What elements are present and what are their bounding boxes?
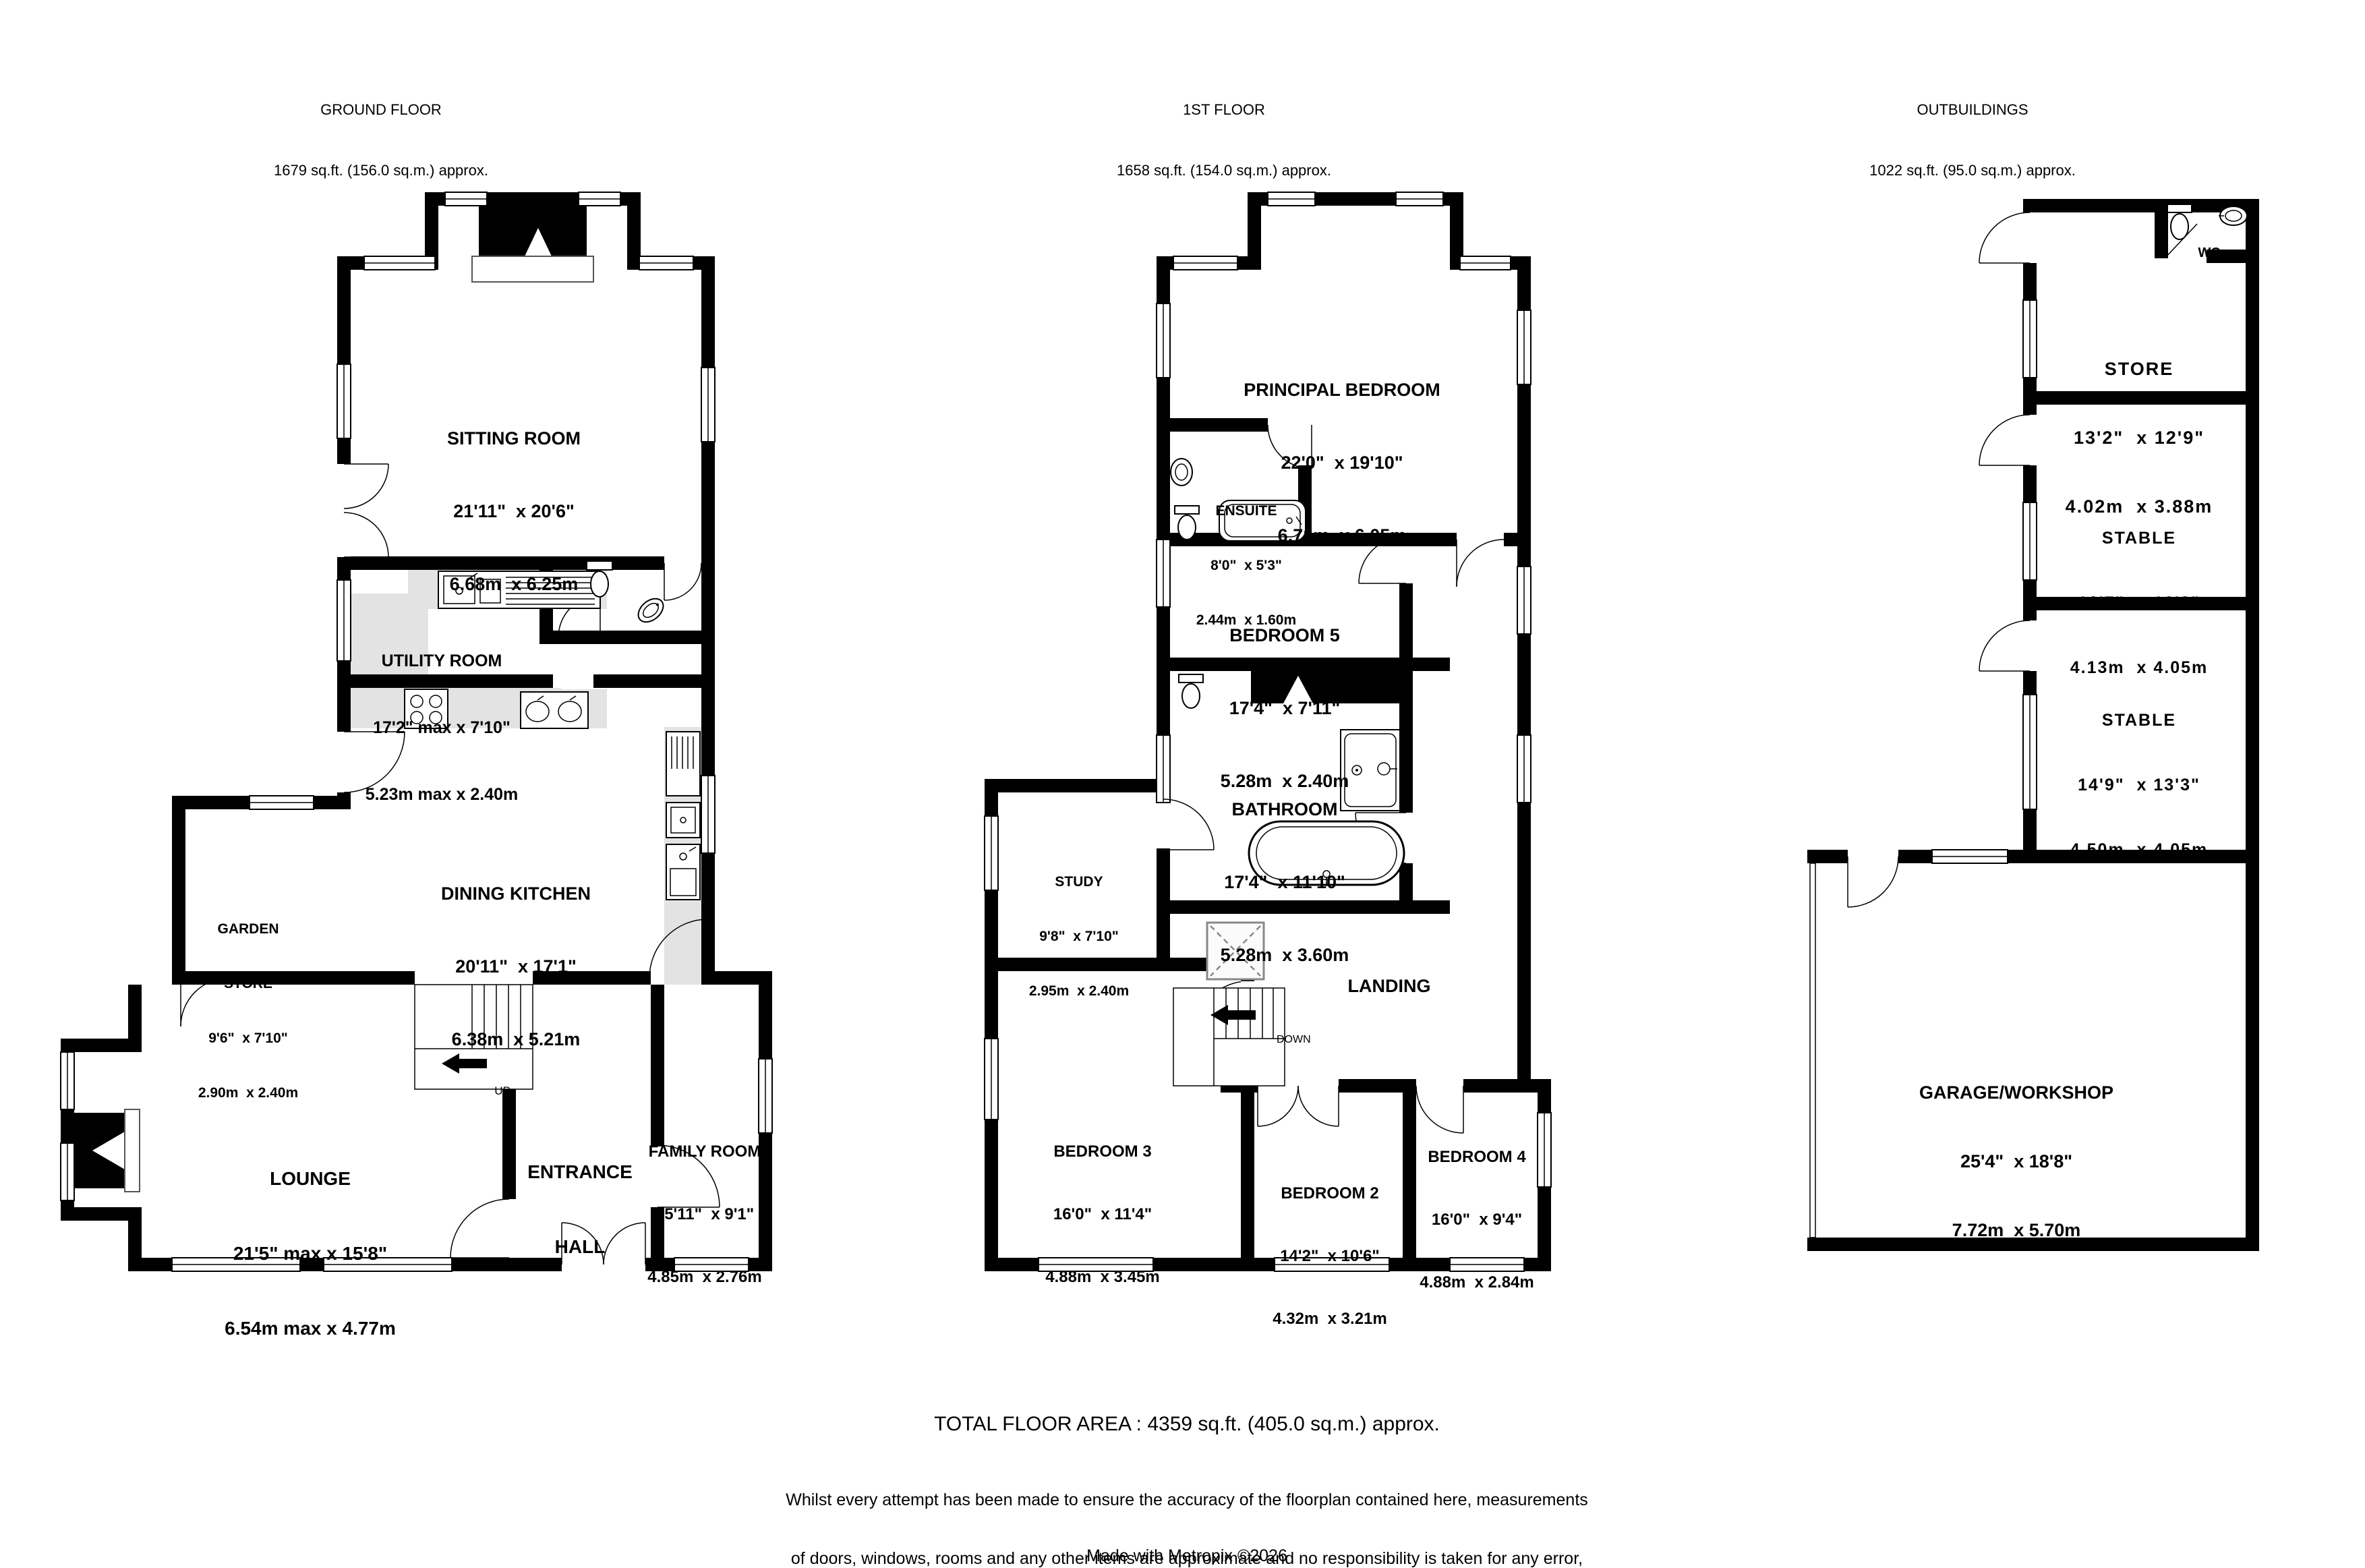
room-label-lounge: LOUNGE 21'5" max x 15'8" 6.54m max x 4.7… <box>225 1116 396 1366</box>
chimney-breast <box>479 206 587 256</box>
room-label-wc-outbuilding: WC <box>2198 214 2220 277</box>
room-label-entrance-hall: ENTRANCE HALL <box>527 1109 633 1284</box>
first-floor-title: 1ST FLOOR <box>1117 100 1331 120</box>
room-label-wc-ground: WC <box>560 592 587 668</box>
room-label-sitting-room: SITTING ROOM 21'11" x 20'6" 6.68m x 6.25… <box>447 378 581 620</box>
room-label-garage-workshop: GARAGE/WORKSHOP 25'4" x 18'8" 7.72m x 5.… <box>1919 1035 2113 1265</box>
shower-icon <box>1341 730 1400 811</box>
appliance-icon <box>666 803 700 838</box>
fireplace <box>67 1109 140 1192</box>
room-label-bedroom-4: BEDROOM 4 16'0" x 9'4" 4.88m x 2.84m <box>1420 1105 1534 1314</box>
double-sink-icon <box>521 692 588 728</box>
first-floor-header: 1ST FLOOR 1658 sq.ft. (154.0 sq.m.) appr… <box>1117 59 1331 201</box>
fridge-icon <box>666 732 700 796</box>
room-label-landing: LANDING <box>1348 934 1431 1018</box>
outbuilding-basin-icon <box>2219 206 2247 225</box>
room-label-family-room: FAMILY ROOM 15'11" x 9'1" 4.85m x 2.76m <box>647 1099 761 1308</box>
outbuildings-title: OUTBUILDINGS <box>1869 100 2076 120</box>
room-label-stable-2: STABLE 14'9" x 13'3" 4.50m x 4.05m <box>2070 666 2209 882</box>
room-label-bathroom: BATHROOM 17'4" x 11'10" 5.28m x 3.60m <box>1221 749 1349 991</box>
stairs-down <box>1173 988 1285 1086</box>
room-label-utility-room: UTILITY ROOM 17'2" max x 7'10" 5.23m max… <box>366 606 519 828</box>
ground-floor-header: GROUND FLOOR 1679 sq.ft. (156.0 sq.m.) a… <box>274 59 488 201</box>
room-label-study: STUDY 9'8" x 7'10" 2.95m x 2.40m <box>1029 836 1129 1018</box>
windows <box>1932 300 2037 863</box>
garage-door-edge <box>1810 863 1815 1238</box>
bathroom-toilet-icon <box>1179 674 1203 708</box>
hearth-outline <box>472 256 593 282</box>
total-floor-area: TOTAL FLOOR AREA : 4359 sq.ft. (405.0 sq… <box>934 1413 1440 1436</box>
outbuildings-area: 1022 sq.ft. (95.0 sq.m.) approx. <box>1869 161 2076 181</box>
ground-floor-title: GROUND FLOOR <box>274 100 488 120</box>
kitchen-sink-icon <box>666 844 700 900</box>
stairs-down-label: DOWN <box>1277 1010 1311 1058</box>
ground-floor-area: 1679 sq.ft. (156.0 sq.m.) approx. <box>274 161 488 181</box>
wash-basin-icon <box>634 594 668 627</box>
room-label-bedroom-3: BEDROOM 3 16'0" x 11'4" 4.88m x 3.45m <box>1045 1099 1159 1308</box>
credit-line: Made with Metropix ©2026 <box>1086 1546 1287 1566</box>
ensuite-basin-icon <box>1171 459 1192 486</box>
stairs-up-label: UP <box>494 1057 510 1111</box>
room-label-dining-kitchen: DINING KITCHEN 20'11" x 17'1" 6.38m x 5.… <box>441 833 591 1076</box>
room-label-garden-store: GARDEN STORE 9'6" x 7'10" 2.90m x 2.40m <box>198 883 298 1120</box>
first-floor-area: 1658 sq.ft. (154.0 sq.m.) approx. <box>1117 161 1331 181</box>
floorplan-page: GROUND FLOOR 1679 sq.ft. (156.0 sq.m.) a… <box>0 0 2365 1568</box>
outbuildings-header: OUTBUILDINGS 1022 sq.ft. (95.0 sq.m.) ap… <box>1869 59 2076 201</box>
room-label-bedroom-2: BEDROOM 2 14'2" x 10'6" 4.32m x 3.21m <box>1273 1141 1386 1350</box>
